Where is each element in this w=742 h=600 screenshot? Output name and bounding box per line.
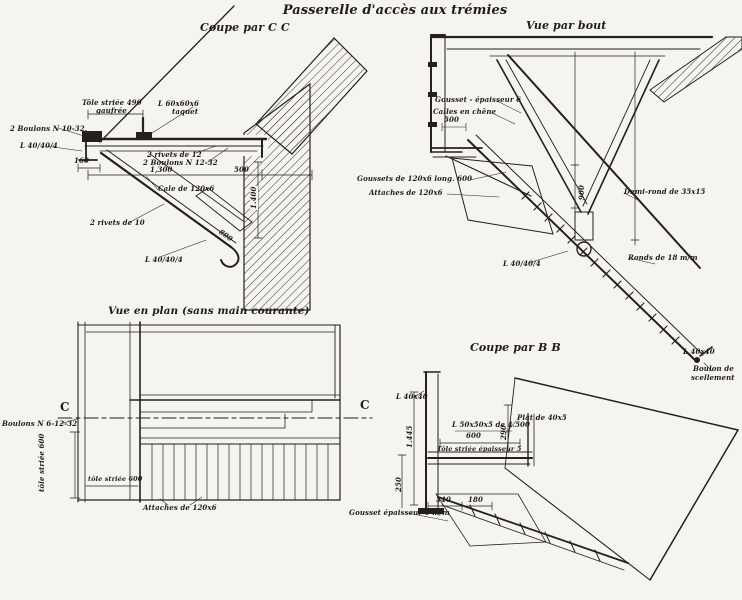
label-tole-striee-2: gaufrée bbox=[96, 107, 127, 115]
label-dim-600: 600 bbox=[466, 432, 481, 440]
label-demi-rond: Demi-rond de 35x15 bbox=[624, 188, 706, 196]
drawing-sheet: Passerelle d'accès aux trémies Coupe par… bbox=[0, 0, 742, 600]
label-dim-250: 250 bbox=[395, 477, 403, 492]
label-tole-600-vert: tôle striée 600 bbox=[38, 434, 46, 492]
label-taquet: taquet bbox=[172, 108, 198, 116]
label-cale: Cale de 120x6 bbox=[158, 185, 214, 193]
label-plat: Plat de 40x5 bbox=[517, 414, 567, 422]
label-dim-290: 290 bbox=[500, 425, 508, 440]
label-dim-1445: 1.445 bbox=[406, 426, 414, 448]
label-rivets-10: 2 rivets de 10 bbox=[90, 219, 145, 227]
label-boulons-plan: Boulons N 6-12-32 bbox=[2, 420, 77, 428]
drawing-title: Passerelle d'accès aux trémies bbox=[280, 4, 510, 19]
label-corniere-haut: L 40x40 bbox=[396, 393, 428, 401]
label-corniere-vb: L 40/40/4 bbox=[503, 260, 541, 268]
view-title-coupe-cc: Coupe par C C bbox=[200, 22, 290, 33]
label-attaches-plan: Attaches de 120x6 bbox=[143, 504, 217, 512]
label-attaches-vb: Attaches de 120x6 bbox=[369, 189, 443, 197]
label-boulon-scellement-1: Boulon de bbox=[693, 365, 734, 373]
label-gousset-ep: Gousset - épaisseur 6 bbox=[435, 96, 521, 104]
label-dim-180: 180 bbox=[468, 496, 483, 504]
label-dim-900: 900 bbox=[578, 185, 586, 200]
view-coupe-bb-linework bbox=[398, 372, 738, 580]
label-corniere-1500: L 50x50x5 de 4.500 bbox=[452, 421, 530, 429]
view-title-coupe-bb: Coupe par B B bbox=[470, 342, 561, 353]
label-dim-160: 160 bbox=[74, 157, 89, 165]
view-title-vue-bout: Vue par bout bbox=[526, 20, 606, 31]
view-vue-bout-linework bbox=[428, 35, 742, 371]
label-dim-500-cc: 500 bbox=[234, 166, 249, 174]
label-tole-600-h: tôle striée 600 bbox=[88, 476, 142, 483]
section-mark-c-left: C bbox=[60, 401, 70, 413]
label-boulons-10: 2 Boulons N 10-32 bbox=[10, 125, 85, 133]
label-boulon-scellement-2: scellement bbox=[691, 374, 735, 382]
label-corniere-fin: L 40x40 bbox=[683, 348, 715, 356]
label-tole-ep: Tôle striée épaisseur 5 bbox=[437, 446, 521, 453]
section-mark-c-right: C bbox=[360, 399, 370, 411]
label-dim-340: 340 bbox=[436, 496, 451, 504]
label-dim-500-vb: 500 bbox=[444, 116, 459, 124]
view-title-vue-plan: Vue en plan (sans main courante) bbox=[108, 306, 310, 317]
label-dim-1400: 1.400 bbox=[250, 186, 258, 210]
label-ronds-18: Ronds de 18 m/m bbox=[628, 254, 698, 262]
label-corniere-gauche: L 40/40/4 bbox=[20, 142, 58, 150]
label-calles-chene: Calles en chêne bbox=[433, 108, 496, 116]
label-dim-1300: 1,300 bbox=[150, 166, 172, 174]
label-corniere-bas: L 40/40/4 bbox=[145, 256, 183, 264]
label-gousset-bb: Gousset épaisseur 6 m/m bbox=[349, 509, 450, 517]
label-goussets-long: Goussets de 120x6 long. 600 bbox=[357, 175, 472, 183]
